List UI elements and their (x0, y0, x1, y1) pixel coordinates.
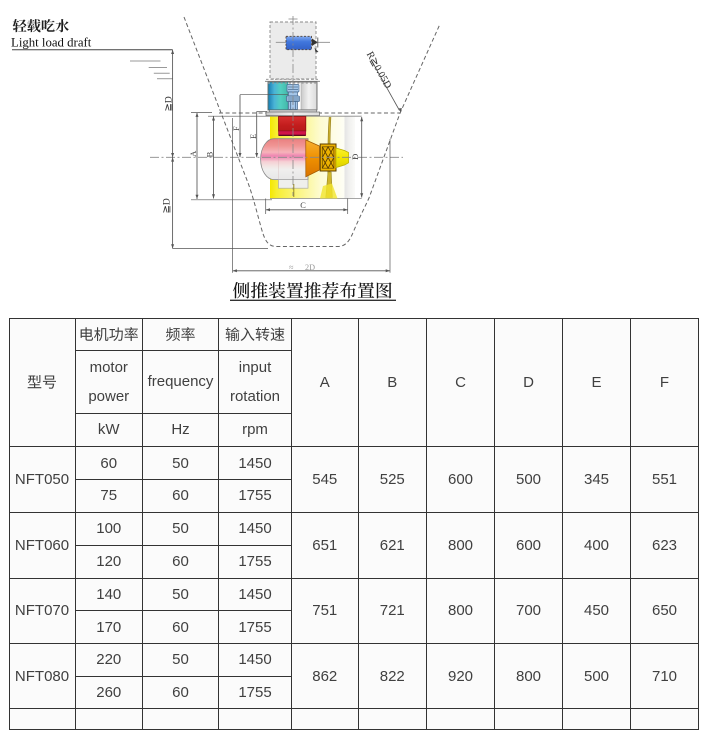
svg-text:≧D: ≧D (164, 96, 175, 111)
svg-text:B: B (205, 152, 215, 158)
svg-text:≈: ≈ (289, 263, 294, 272)
svg-text:Light load draft: Light load draft (11, 36, 92, 50)
svg-text:A: A (188, 150, 198, 157)
svg-text:R≧0.05D: R≧0.05D (364, 50, 393, 91)
svg-text:D: D (350, 154, 360, 160)
svg-text:C: C (300, 201, 306, 210)
svg-text:2D: 2D (305, 263, 315, 272)
svg-text:E: E (248, 134, 258, 139)
svg-text:≧D: ≧D (162, 198, 173, 213)
